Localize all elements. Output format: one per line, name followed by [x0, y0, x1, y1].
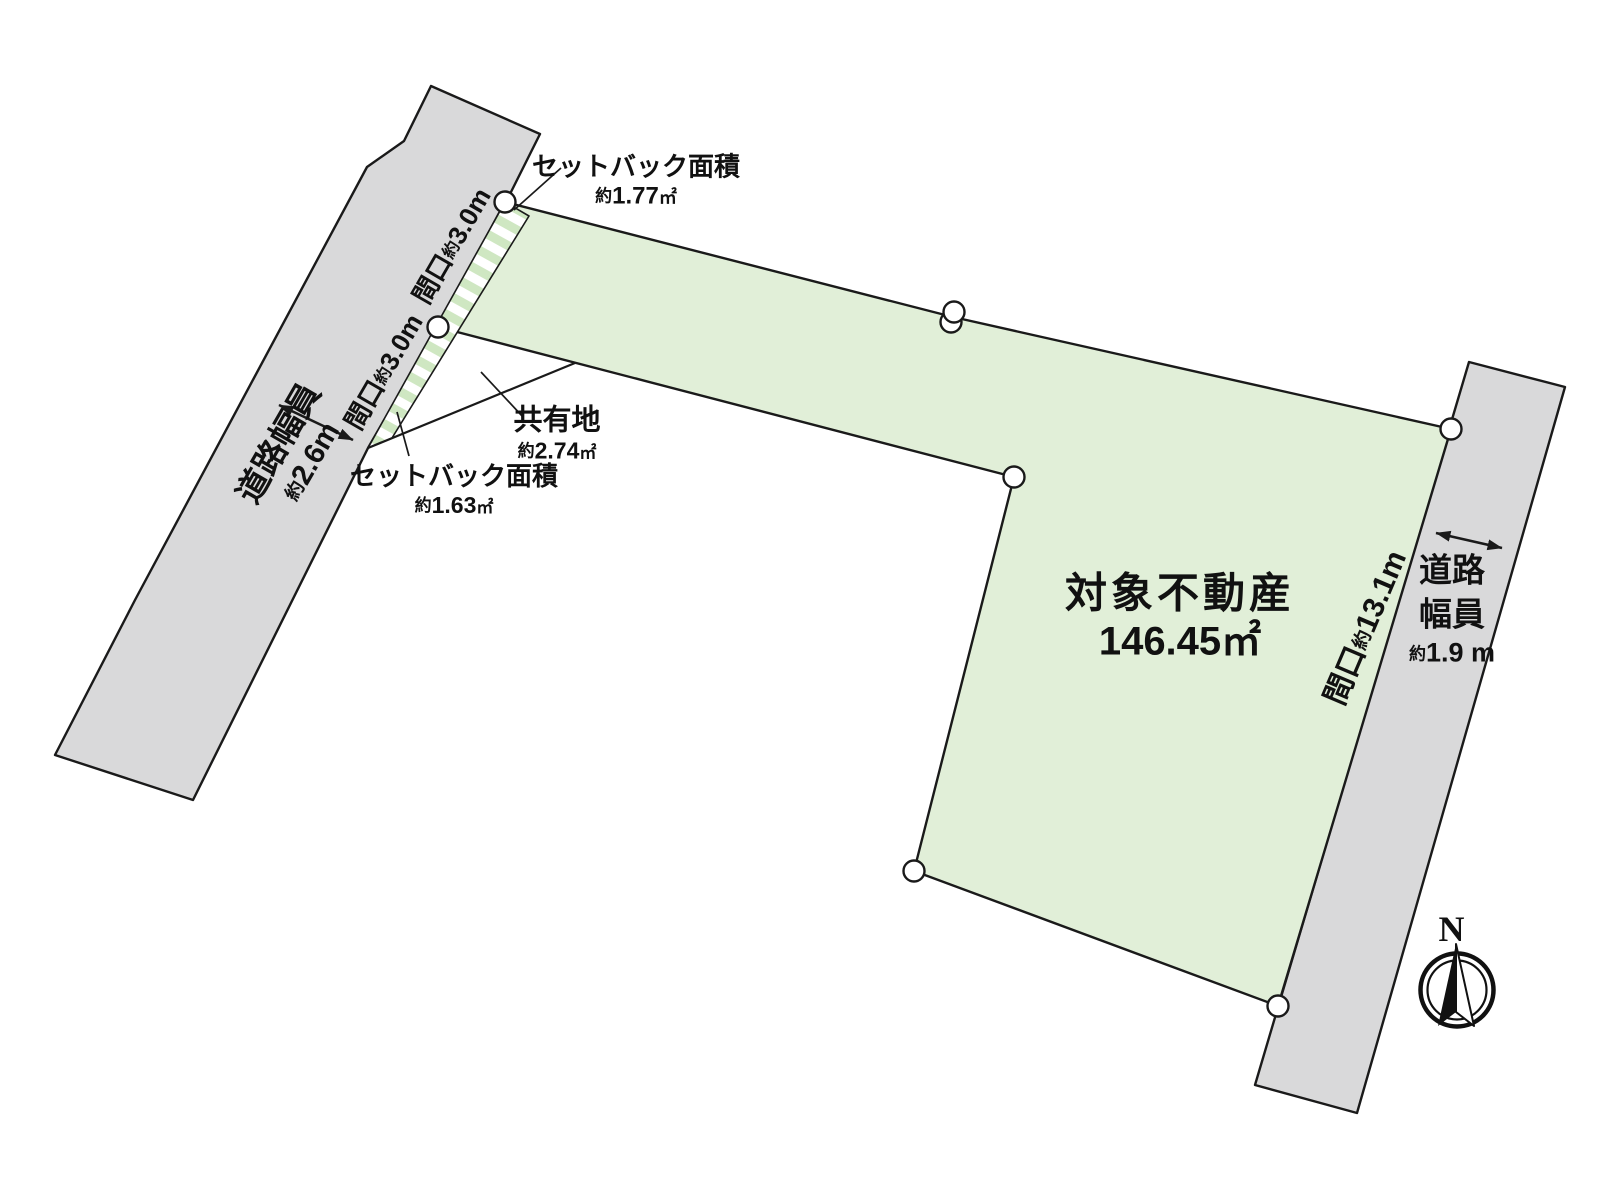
shared-land-area: 約2.74㎡: [513, 438, 600, 465]
approx-mark: 約: [415, 496, 432, 515]
setback-top-title: セットバック面積: [532, 152, 740, 183]
vertex-marker: [1268, 996, 1289, 1017]
setback-left-area: 約1.63㎡: [350, 492, 558, 519]
vertex-marker: [1004, 467, 1025, 488]
area-unit: ㎡: [579, 444, 596, 463]
setback-left-title: セットバック面積: [350, 461, 558, 492]
road-width-value: 1.9 m: [1426, 638, 1495, 668]
site-plan-diagram: セットバック面積 約1.77㎡ 間口約3.0m 間口約3.0m 道路幅員 約2.…: [0, 0, 1600, 1200]
subject-property-label: 対象不動産 146.45㎡: [1065, 569, 1295, 666]
subject-property-area: 146.45㎡: [1065, 618, 1295, 665]
setback-left-label: セットバック面積 約1.63㎡: [350, 461, 558, 519]
area-unit: ㎡: [659, 187, 677, 207]
road-width-right-label: 道路 幅員 約1.9 m: [1409, 549, 1495, 672]
road-width-value-row: 約1.9 m: [1409, 636, 1495, 672]
subject-property-title: 対象不動産: [1065, 569, 1295, 619]
vertex-marker: [944, 302, 965, 323]
approx-mark: 約: [595, 186, 612, 205]
shared-land-label: 共有地 約2.74㎡: [513, 403, 600, 464]
compass-north-label: N: [1439, 908, 1466, 950]
road-width-title-line2: 幅員: [1409, 592, 1495, 636]
setback-top-area: 約1.77㎡: [532, 182, 740, 210]
approx-mark: 約: [1409, 645, 1426, 664]
area-value: 1.77: [612, 182, 659, 209]
approx-mark: 約: [518, 442, 535, 461]
area-value: 2.74: [535, 438, 580, 464]
vertex-marker: [1441, 419, 1462, 440]
setback-top-label: セットバック面積 約1.77㎡: [532, 152, 740, 211]
area-value: 1.63: [432, 492, 477, 518]
vertex-marker: [904, 861, 925, 882]
area-unit: ㎡: [476, 498, 493, 517]
vertex-marker: [495, 192, 516, 213]
compass-icon: [1421, 944, 1494, 1027]
vertex-marker: [428, 317, 449, 338]
shared-land-title: 共有地: [513, 403, 600, 437]
road-width-title-line1: 道路: [1409, 549, 1495, 593]
